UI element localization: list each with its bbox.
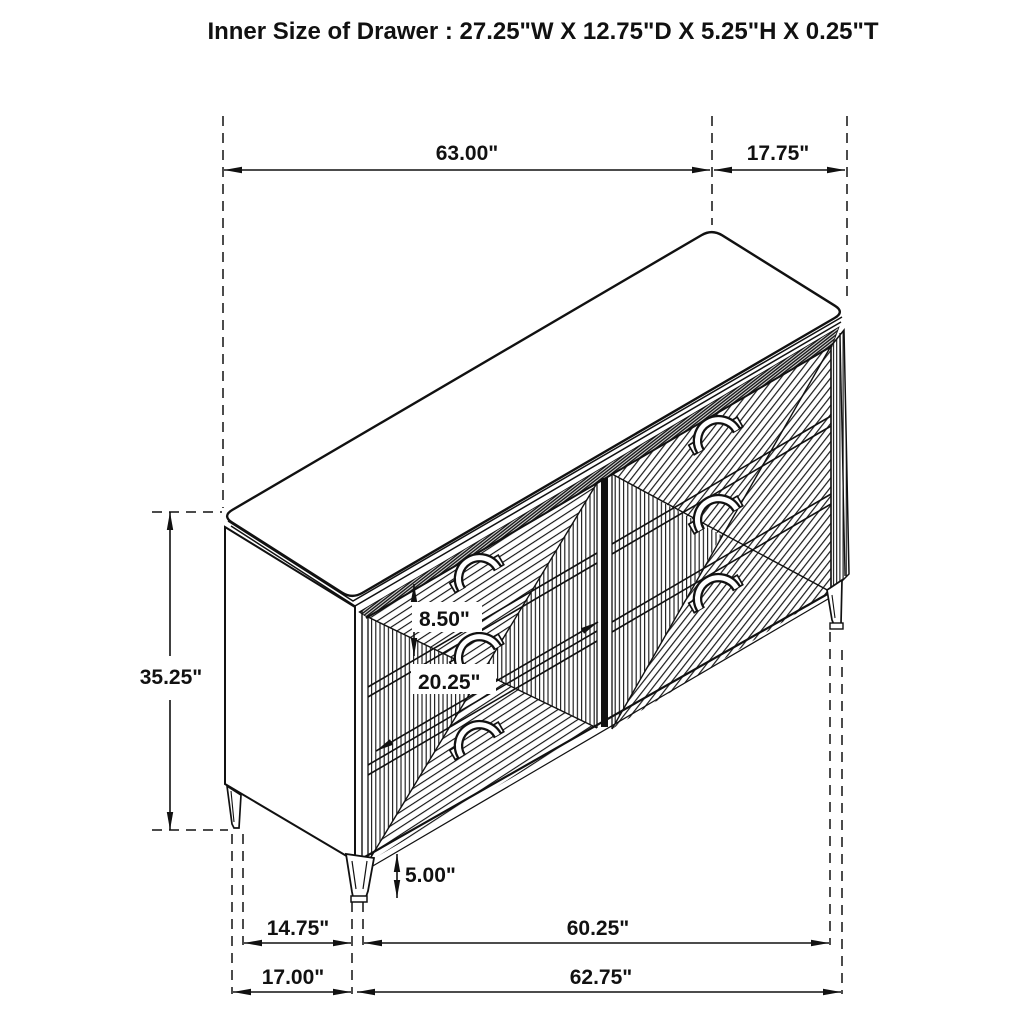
dim-drawer-height-label: 8.50" — [419, 608, 470, 631]
diagram-title: Inner Size of Drawer : 27.25"W X 12.75"D… — [207, 18, 878, 45]
dim-top-depth-label: 17.75" — [747, 142, 810, 165]
dim-base-depth-inner-label: 14.75" — [267, 917, 330, 940]
dim-base-width-inner-label: 60.25" — [567, 917, 630, 940]
dim-base-width-overall-label: 62.75" — [570, 966, 633, 989]
dim-leg-height-label: 5.00" — [405, 864, 456, 887]
diagram-canvas: 63.00" 17.75" 35.25" 8.50" 20.25" 5.00" … — [0, 0, 1024, 1024]
dim-drawer-width-label: 20.25" — [418, 671, 481, 694]
dim-overall-height-label: 35.25" — [140, 666, 203, 689]
dim-top-length-label: 63.00" — [436, 142, 499, 165]
dresser-dimension-diagram: 63.00" 17.75" 35.25" 8.50" 20.25" 5.00" … — [0, 0, 1024, 1024]
dim-base-depth-overall-label: 17.00" — [262, 966, 325, 989]
